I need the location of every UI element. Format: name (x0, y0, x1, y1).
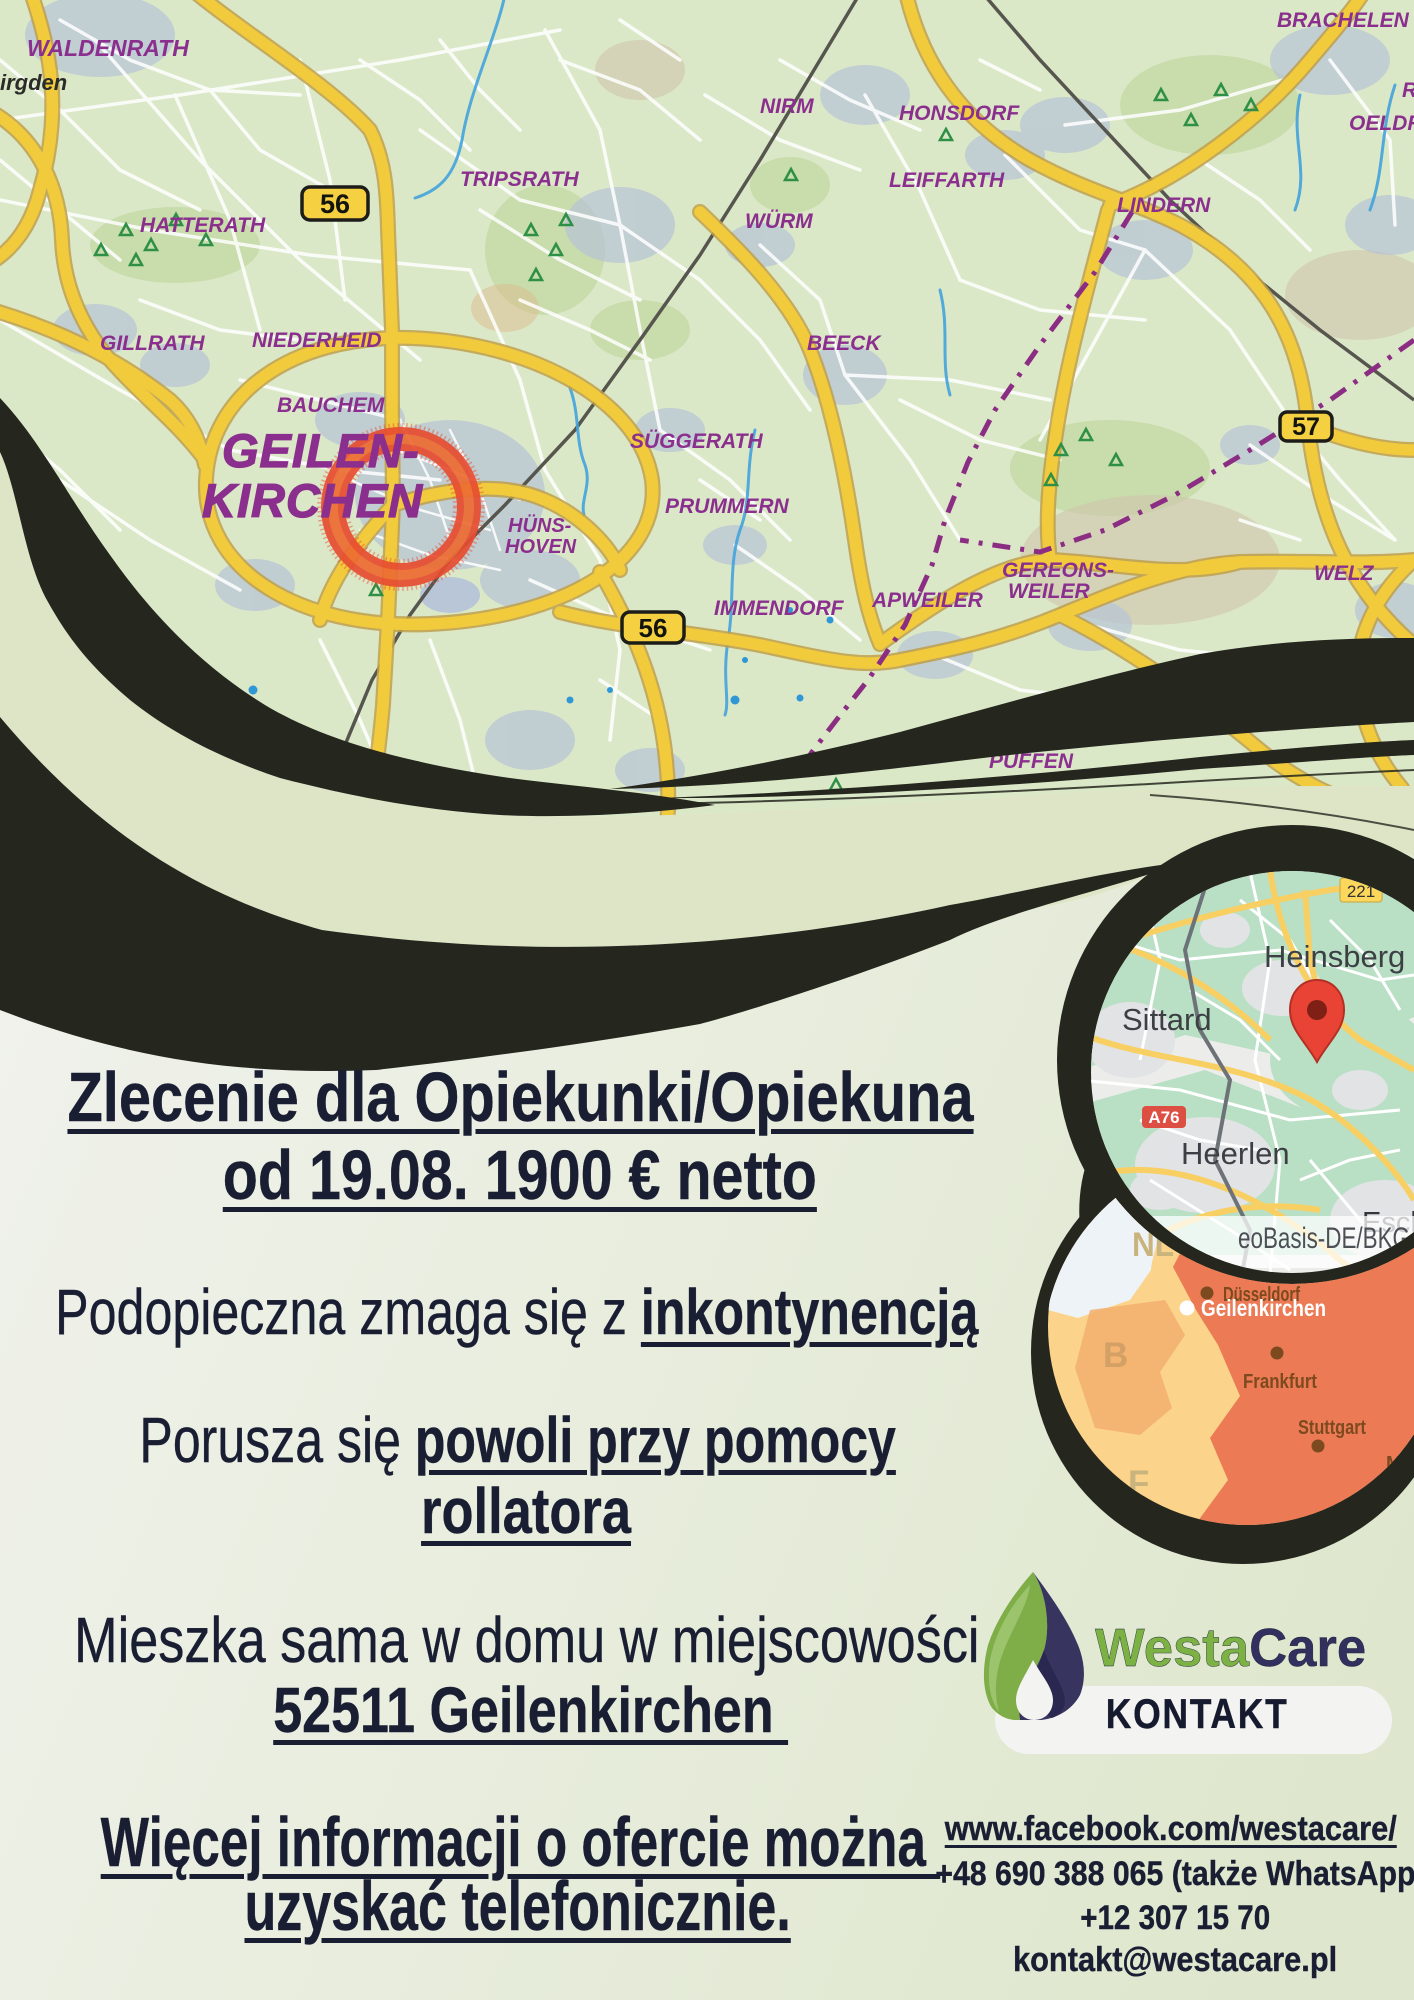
svg-text:WÜRM: WÜRM (745, 210, 813, 233)
svg-text:IMMENDORF: IMMENDORF (714, 597, 845, 620)
svg-text:KIRCHEN: KIRCHEN (202, 474, 423, 527)
svg-text:LINDERN: LINDERN (1117, 194, 1211, 217)
svg-text:PRUMMERN: PRUMMERN (665, 495, 789, 518)
svg-text:GILLRATH: GILLRATH (100, 332, 205, 355)
svg-text:NIEDERHEID: NIEDERHEID (252, 329, 382, 352)
svg-text:NIRM: NIRM (760, 95, 814, 118)
svg-text:BAUCHEM: BAUCHEM (277, 394, 385, 417)
svg-text:Frankfurt: Frankfurt (1243, 1371, 1317, 1393)
svg-text:HÜNS-: HÜNS- (508, 514, 572, 537)
svg-text:RU: RU (1402, 79, 1414, 102)
svg-text:eoBasis-DE/BKG: eoBasis-DE/BKG (1238, 1222, 1410, 1255)
svg-text:TRIPSRATH: TRIPSRATH (460, 168, 579, 191)
svg-text:Heerlen: Heerlen (1181, 1136, 1290, 1171)
svg-text:WELZ: WELZ (1314, 562, 1375, 585)
svg-text:WEILER: WEILER (1008, 580, 1090, 603)
svg-text:APWEILER: APWEILER (871, 589, 984, 612)
svg-text:HONSDORF: HONSDORF (899, 102, 1020, 125)
svg-text:56: 56 (320, 189, 350, 219)
svg-text:HOVEN: HOVEN (505, 536, 577, 558)
svg-text:Heinsberg: Heinsberg (1264, 939, 1405, 974)
svg-text:57: 57 (1292, 413, 1320, 441)
svg-text:HATTERATH: HATTERATH (140, 214, 266, 237)
svg-text:GEILEN-: GEILEN- (222, 424, 420, 477)
svg-text:LEIFFARTH: LEIFFARTH (889, 169, 1005, 192)
svg-text:SÜGGERATH: SÜGGERATH (630, 430, 763, 453)
svg-text:BEECK: BEECK (807, 332, 882, 355)
svg-text:WALDENRATH: WALDENRATH (27, 35, 189, 61)
svg-text:Stuttgart: Stuttgart (1298, 1417, 1366, 1439)
svg-text:irgden: irgden (0, 70, 67, 95)
svg-text:Sittard: Sittard (1122, 1002, 1212, 1037)
svg-text:GEREONS-: GEREONS- (1002, 559, 1114, 582)
svg-text:BRACHELEN: BRACHELEN (1277, 9, 1410, 32)
svg-text:OELDRI: OELDRI (1349, 112, 1414, 135)
svg-text:Geilenkirchen: Geilenkirchen (1201, 1295, 1326, 1321)
svg-text:56: 56 (639, 613, 668, 643)
